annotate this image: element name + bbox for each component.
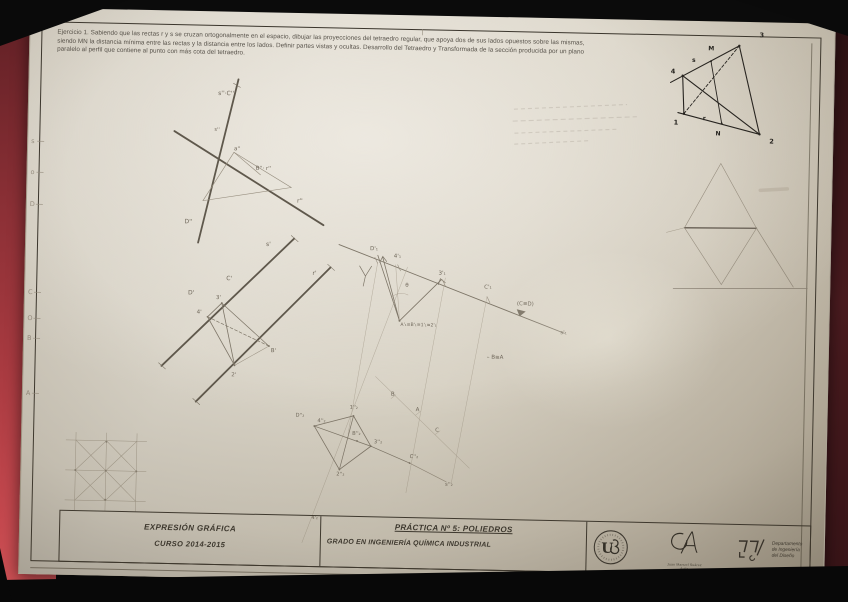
label-pencil: D'	[188, 289, 195, 296]
label-pencil: s'	[266, 241, 271, 248]
label-margin: B	[27, 334, 32, 342]
label-pencil: θ	[405, 283, 409, 289]
degree-title: GRADO EN INGENIERÍA QUÍMICA INDUSTRIAL	[327, 538, 586, 550]
label-pencil: 4'₁	[394, 254, 401, 260]
title-block-subject-cell: EXPRESIÓN GRÁFICA CURSO 2014-2015	[59, 511, 321, 566]
label-ink: 1	[674, 119, 679, 127]
geometry-drawing-layer: 3M4s1rN2s''·C''s''a''B''· r''D''r''s'r'C…	[19, 7, 835, 590]
label-pencil: C''₂	[410, 454, 419, 460]
label-margin: D	[30, 200, 35, 208]
label-pencil: 4'	[197, 310, 202, 316]
label-pencil: B''₂	[352, 431, 361, 437]
paper-sheet: Ejercicio 1. Sabiendo que las rectas r y…	[18, 6, 836, 591]
label-pencil: B'	[271, 348, 276, 354]
label-pencil: a''	[234, 146, 241, 152]
faint-handwriting-marks	[512, 102, 637, 147]
label-ink: r	[703, 115, 706, 122]
title-block-logos-cell: U Juan Manuel Suárez Ávila	[586, 522, 810, 577]
frame-tick-marks	[32, 21, 423, 401]
label-ink: M	[708, 45, 714, 52]
label-pencil: 2'	[231, 372, 236, 378]
title-block-practice-cell: PRÁCTICA Nº 5: POLIEDROS GRADO EN INGENI…	[320, 516, 587, 572]
label-pencil: 3'	[216, 295, 221, 301]
label-margin: s	[31, 137, 35, 145]
label-ink: 4	[671, 67, 676, 75]
label-margin: C	[28, 288, 33, 296]
svg-text:U: U	[601, 541, 614, 557]
department-logo-icon	[736, 537, 767, 564]
photo-of-drawing-sheet: Ejercicio 1. Sabiendo que las rectas r y…	[0, 0, 848, 602]
label-pencil: C'₁	[484, 285, 492, 291]
course-year: CURSO 2014-2015	[60, 537, 320, 551]
profile-view-drawing	[172, 78, 326, 245]
signature-block: Juan Manuel Suárez Ávila	[662, 527, 707, 571]
horizontal-projection-drawing	[158, 233, 336, 408]
label-pencil: D'₁	[370, 246, 378, 252]
label-pencil: B''· r''	[256, 166, 272, 172]
label-pencil: A'₁≡B'₁≡1'₁≡2'₁	[400, 322, 436, 329]
label-pencil: C'	[226, 275, 232, 282]
label-ink: 2	[769, 138, 774, 146]
label-pencil: B	[391, 392, 395, 398]
label-ink: s	[692, 57, 696, 64]
label-pencil: – B≡A	[487, 355, 504, 361]
label-margin: O	[27, 314, 32, 322]
grid-star-sketch	[64, 432, 147, 512]
label-pencil: D''	[184, 218, 192, 225]
signature-monogram-icon	[663, 527, 708, 558]
label-pencil: s''₂	[445, 482, 453, 488]
label-pencil: s'₁	[560, 330, 567, 336]
label-pencil: 3'₁	[438, 271, 445, 277]
universidad-sevilla-seal-icon: U	[590, 526, 631, 569]
practice-title: PRÁCTICA Nº 5: POLIEDROS	[321, 521, 586, 536]
label-margin: o	[30, 168, 34, 176]
label-ink: 3	[759, 31, 764, 39]
label-margin: A	[26, 389, 31, 397]
label-pencil: r''	[297, 198, 303, 205]
rotation-construction-drawing	[337, 245, 566, 334]
label-ink: N	[715, 130, 720, 137]
label-pencil: 4''₂	[317, 418, 325, 424]
label-pencil: 3''₂	[374, 439, 382, 445]
auxiliary-view-drawing	[312, 414, 447, 482]
label-pencil: 2''₂	[336, 472, 344, 478]
label-pencil: 1''₂	[350, 405, 358, 411]
label-pencil: r'	[312, 270, 317, 277]
label-pencil: D''₂	[295, 413, 304, 419]
label-pencil: (C≡D)	[517, 301, 534, 307]
label-pencil: C	[435, 428, 439, 434]
ink-tetrahedron-sketch	[669, 43, 762, 135]
label-pencil: s''	[214, 127, 219, 133]
department-block: Departamento de Ingeniería del Diseño	[736, 537, 802, 564]
label-pencil: A	[416, 407, 420, 413]
label-pencil: s''·C''	[218, 90, 234, 97]
development-triangle-drawing	[665, 162, 810, 291]
drawing-point-labels: 3M4s1rN2s''·C''s''a''B''· r''D''r''s'r'C…	[23, 16, 776, 530]
dept-line-3: del Diseño	[772, 554, 803, 560]
subject-title: EXPRESIÓN GRÁFICA	[60, 521, 320, 535]
